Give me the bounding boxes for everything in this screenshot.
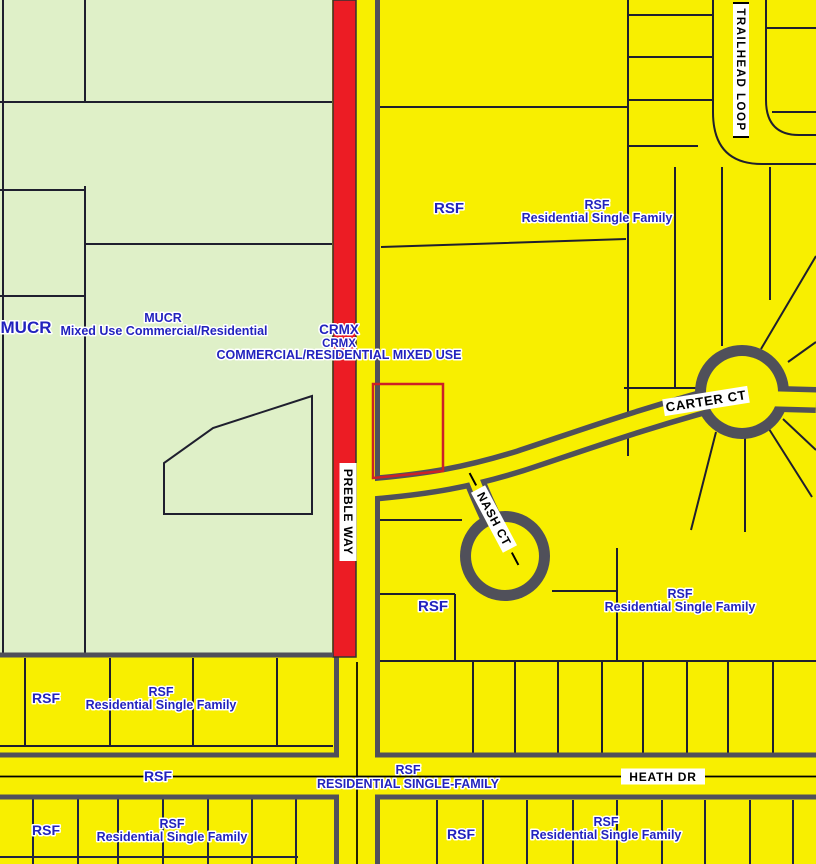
zone-code-rsf-bottom-left: RSF [32, 822, 60, 838]
zone-name-rsf-row-center: Residential Single Family [86, 698, 237, 712]
zone-code-mucr-large: MUCR [1, 318, 52, 337]
zone-code-rsf-bottom-left2: RSF [160, 817, 185, 831]
street-label-heath-dr: HEATH DR [621, 769, 705, 785]
zone-name-mucr: Mixed Use Commercial/Residential [60, 324, 267, 338]
street-label-text: TRAILHEAD LOOP [734, 8, 746, 131]
zone-code-rsf-heath-left: RSF [144, 768, 172, 784]
street-label-preble-way: PREBLE WAY [340, 463, 357, 561]
zone-name-rsf-bottom-left: Residential Single Family [97, 830, 248, 844]
zone-name-crmx: COMMERCIAL/RESIDENTIAL MIXED USE [217, 348, 462, 362]
zone-code-rsf-northeast: RSF [585, 198, 610, 212]
zone-code-mucr-small: MUCR [144, 311, 182, 325]
zone-name-rsf-southeast: Residential Single Family [605, 600, 756, 614]
zone-code-rsf-mid: RSF [418, 598, 448, 615]
street-label-text: HEATH DR [629, 770, 697, 784]
zone-name-rsf-heath-mid: RESIDENTIAL SINGLE-FAMILY [317, 777, 500, 791]
zone-code-crmx-large: CRMX [319, 322, 359, 337]
zone-name-rsf-northeast: Residential Single Family [522, 211, 673, 225]
zone-name-rsf-bottom-right: Residential Single Family [531, 828, 682, 842]
street-label-trailhead-loop: TRAILHEAD LOOP [733, 3, 749, 137]
zone-code-rsf-bottom-mid: RSF [447, 826, 475, 842]
street-label-text: PREBLE WAY [341, 469, 355, 555]
zoning-map-canvas[interactable]: PREBLE WAY TRAILHEAD LOOP CARTER CT NASH… [0, 0, 816, 864]
zone-code-rsf-southeast: RSF [668, 587, 693, 601]
zone-code-rsf-north: RSF [434, 200, 464, 217]
zone-code-rsf-row-center: RSF [149, 685, 174, 699]
zone-code-rsf-bottom-right: RSF [594, 815, 619, 829]
carter-ct-stub-surface [742, 398, 816, 400]
map-viewport[interactable]: PREBLE WAY TRAILHEAD LOOP CARTER CT NASH… [0, 0, 816, 864]
zone-code-rsf-heath-mid: RSF [396, 763, 421, 777]
zone-code-rsf-row-left: RSF [32, 690, 60, 706]
